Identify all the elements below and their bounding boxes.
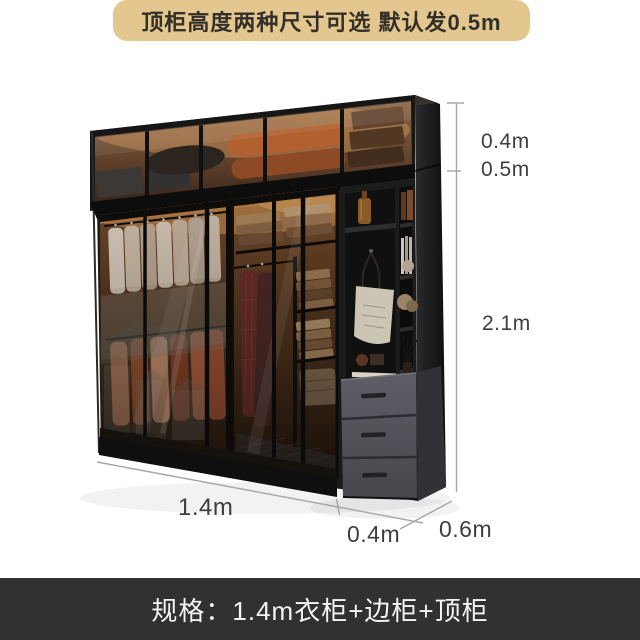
dim-label-top-cabinet-height-a: 0.4m: [481, 131, 530, 152]
wardrobe-illustration: [0, 0, 640, 640]
dim-label-height: 2.1m: [482, 313, 531, 334]
dim-label-depth: 0.6m: [439, 518, 492, 541]
drawer-unit: [341, 366, 446, 501]
side-cabinet: [340, 178, 418, 384]
spec-bar: 规格：1.4m衣柜+边柜+顶柜: [0, 578, 640, 640]
dim-label-side-width: 0.4m: [347, 523, 400, 546]
spec-bar-text: 规格：1.4m衣柜+边柜+顶柜: [151, 591, 488, 628]
product-image: 顶柜高度两种尺寸可选 默认发0.5m: [0, 0, 640, 640]
dim-label-main-width: 1.4m: [178, 496, 233, 520]
glass-doors-section: [75, 178, 375, 497]
dim-label-top-cabinet-height-b: 0.5m: [481, 159, 530, 180]
